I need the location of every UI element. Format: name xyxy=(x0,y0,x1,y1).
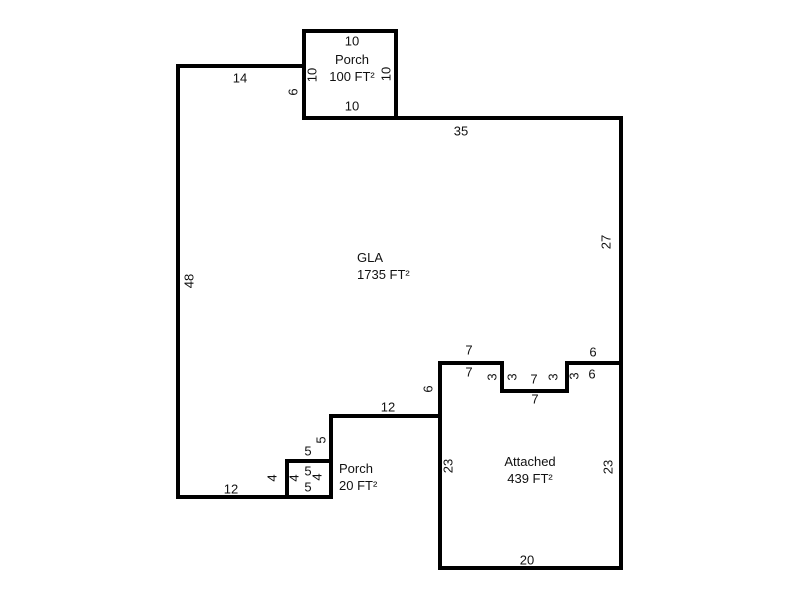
dim-att-bottom: 20 xyxy=(520,554,534,567)
dim-notch-mid-att: 7 xyxy=(531,393,538,406)
porch-top-area: 100 FT² xyxy=(329,68,375,85)
dim-porch-top: 10 xyxy=(345,35,359,48)
dim-notch-step2-att: 3 xyxy=(568,372,581,379)
porch-bottom-area: 20 FT² xyxy=(339,477,377,494)
porch-top-label: Porch 100 FT² xyxy=(329,51,375,85)
attached-area: 439 FT² xyxy=(504,470,555,487)
dim-notch-step1-gla: 3 xyxy=(486,373,499,380)
porch-top-name: Porch xyxy=(329,51,375,68)
dim-att-left: 23 xyxy=(442,459,455,473)
dim-notch-right-gla: 6 xyxy=(589,346,596,359)
dim-gla-att-wall: 6 xyxy=(422,385,435,392)
floorplan-walls xyxy=(0,0,800,600)
dim-notch-step2-gla: 3 xyxy=(547,373,560,380)
dim-notch-left-att: 7 xyxy=(465,366,472,379)
dim-notch-left-gla: 7 xyxy=(465,344,472,357)
dim-step-top: 12 xyxy=(381,401,395,414)
dim-notch-right-att: 6 xyxy=(588,368,595,381)
dim-gla-top-right: 35 xyxy=(454,125,468,138)
gla-label: GLA 1735 FT² xyxy=(357,249,410,283)
gla-name: GLA xyxy=(357,249,410,266)
dim-notch-step1-att: 3 xyxy=(506,373,519,380)
dim-box-bottom-inner: 5 xyxy=(304,481,311,494)
floorplan-sketch: Porch 100 FT² GLA 1735 FT² Porch 20 FT² … xyxy=(0,0,800,600)
dim-box-right-inner: 4 xyxy=(311,473,324,480)
dim-porch-left: 10 xyxy=(306,68,319,82)
dim-notch-mid-gla: 7 xyxy=(530,373,537,386)
dim-box-top-outer: 5 xyxy=(304,445,311,458)
attached-name: Attached xyxy=(504,453,555,470)
dim-att-right: 23 xyxy=(602,460,615,474)
porch-bottom-name: Porch xyxy=(339,460,377,477)
dim-porch-bottom: 10 xyxy=(345,100,359,113)
porch-bottom-label: Porch 20 FT² xyxy=(339,460,377,494)
dim-gla-left: 48 xyxy=(183,274,196,288)
dim-gla-bottom: 12 xyxy=(224,483,238,496)
dim-step-right: 5 xyxy=(315,436,328,443)
dim-box-left-outer: 4 xyxy=(266,474,279,481)
gla-area: 1735 FT² xyxy=(357,266,410,283)
dim-box-left-inner: 4 xyxy=(288,474,301,481)
dim-gla-right: 27 xyxy=(600,235,613,249)
dim-gla-top-left: 14 xyxy=(233,72,247,85)
dim-porch-right: 10 xyxy=(380,67,393,81)
attached-label: Attached 439 FT² xyxy=(504,453,555,487)
dim-gla-porch-wall: 6 xyxy=(287,88,300,95)
